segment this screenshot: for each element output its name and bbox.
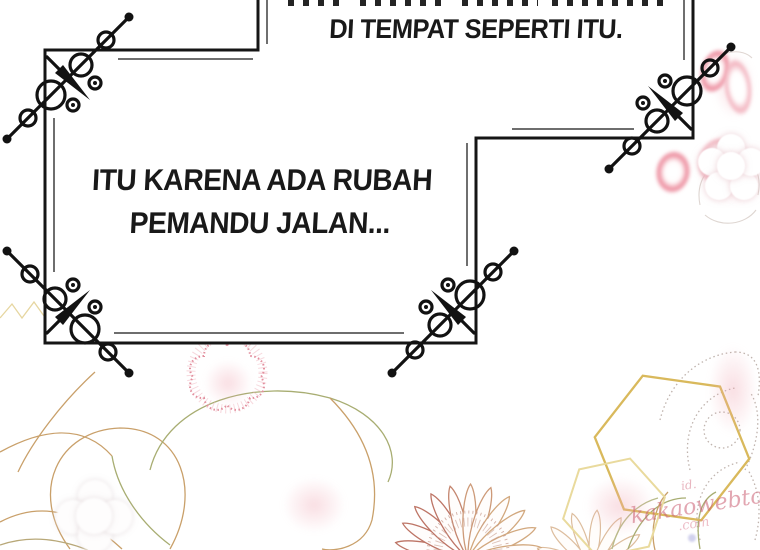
watermark-suffix: .com (677, 515, 711, 535)
pink-wash (700, 330, 760, 450)
soft-clover-flower (56, 480, 132, 550)
top-balloon-text: DI TEMPAT SEPERTI ITU. (270, 13, 682, 45)
webtoon-panel: DI TEMPAT SEPERTI ITU. ITU KARENA ADA RU… (0, 0, 760, 550)
corner-ornament-top-left (0, 3, 143, 153)
corner-ornament-bottom-left (0, 237, 143, 387)
main-balloon-text: ITU KARENA ADA RUBAH PEMANDU JALAN... (56, 159, 467, 245)
corner-ornament-top-box (595, 33, 745, 183)
pink-wash (272, 468, 356, 542)
main-balloon-line-1: ITU KARENA ADA RUBAH (58, 159, 466, 202)
main-balloon-line-2: PEMANDU JALAN... (56, 202, 464, 245)
pink-wash (196, 352, 260, 414)
pink-wash (574, 466, 666, 546)
watermark-dot (688, 534, 696, 542)
corner-ornament-bottom-right (378, 237, 528, 387)
watermark-prefix: id. (680, 477, 697, 493)
gerbera-lineart (394, 484, 542, 550)
